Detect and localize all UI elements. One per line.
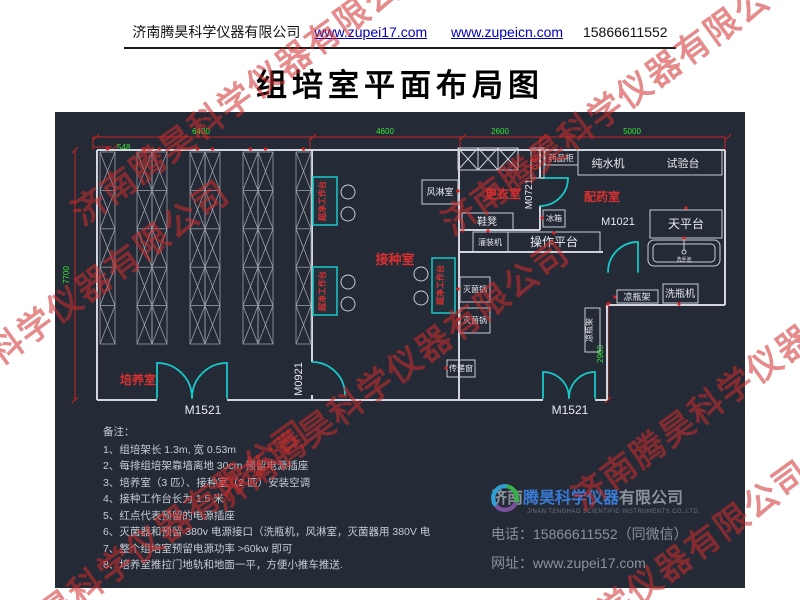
power-outlet-dot: [456, 317, 459, 320]
power-outlet-dot: [211, 147, 214, 150]
power-outlet-dot: [540, 216, 543, 219]
power-outlet-dot: [302, 147, 305, 150]
changing-room-label: 更衣室: [485, 186, 521, 201]
footer-company-suffix: 有限公司: [619, 490, 683, 507]
dim-6400: 6400: [192, 127, 210, 136]
footer-web-label: 网址：: [491, 555, 533, 571]
notes-heading: 备注：: [103, 424, 430, 441]
clean-bench-label: 超净工作台: [435, 265, 445, 306]
locker-cabinet: [458, 148, 518, 170]
header-phone: 15866611552: [583, 24, 668, 40]
door-m1521-left-label: M1521: [185, 403, 222, 417]
door-m0921-arc: [312, 362, 345, 395]
door-arc: [569, 372, 595, 398]
door-arc: [543, 372, 569, 398]
clean-bench-2: 超净工作台: [313, 267, 355, 315]
power-outlet-dot: [444, 366, 447, 369]
power-outlet-dot: [106, 147, 109, 150]
power-outlet-dot: [682, 236, 685, 239]
dispensing-room-label: 配药室: [584, 189, 620, 204]
shoe-bench-label: 鞋凳: [477, 215, 497, 228]
power-outlet-dot: [264, 147, 267, 150]
page: 济南腾昊科学仪器有限公司 www.zupei17.com www.zupeicn…: [0, 0, 800, 600]
note-item: 2、每排组培架靠墙离地 30cm 预留电源插座: [103, 458, 430, 475]
power-outlet-dot: [456, 189, 459, 192]
doors: [157, 178, 638, 398]
power-outlet-dot: [196, 147, 199, 150]
door-arc: [540, 178, 568, 206]
footer-web[interactable]: www.zupei17.com: [533, 555, 646, 571]
power-outlet-dot: [143, 147, 146, 150]
note-item: 6、灭菌器和预留 380v 电源接口（洗瓶机，风淋室，灭菌器用 380V 电: [103, 524, 430, 541]
sterilizer-label: 灭菌锅: [463, 284, 487, 294]
door-m0921-label: M0921: [293, 362, 305, 396]
note-item: 5、红点代表预留的电源插座: [103, 508, 430, 525]
note-item: 1、组培架长 1.3m, 宽 0.53m: [103, 442, 430, 459]
company-footer: 济南腾昊科学仪器有限公司 JINAN TENGHAO SCIENTIFIC IN…: [491, 484, 700, 573]
equipment: 风淋室 衣柜 药品柜 纯水机 试验台 冰箱 天平台 洗手池: [422, 148, 722, 377]
power-outlet-dot: [684, 206, 687, 209]
stool: [341, 207, 355, 221]
door-arc: [192, 363, 227, 398]
note-item: 8、培养室推拉门地轨和地面一平，方便小推车推送.: [103, 557, 430, 574]
pure-water-machine-label: 纯水机: [592, 156, 625, 170]
power-outlet-dot: [552, 231, 555, 234]
stool: [341, 297, 355, 311]
power-outlet-dot: [158, 147, 161, 150]
footer-company-brand: 腾昊科学仪器: [523, 490, 619, 507]
cad-drawing: 548 6400 4600 2600 5000 7700 2900: [55, 112, 745, 588]
footer-phone-label: 电话：: [491, 526, 533, 542]
dimension-lines: [72, 134, 731, 403]
dim-2600: 2600: [491, 127, 509, 136]
stool: [414, 291, 428, 305]
door-arc: [157, 363, 192, 398]
note-item: 4、接种工作台长为 1.5 米: [103, 491, 430, 508]
dim-7700: 7700: [62, 266, 71, 284]
double-door-left: [157, 363, 227, 398]
balance-table-label: 天平台: [668, 216, 704, 231]
power-outlet-dot: [249, 147, 252, 150]
test-bench-label: 试验台: [667, 156, 700, 170]
door-m0721-label: M0721: [524, 178, 535, 209]
pass-window-label: 传递窗: [449, 363, 473, 373]
power-outlet-dot: [606, 302, 609, 305]
door-m1521-right-label: M1521: [552, 403, 589, 417]
header-link-zupei17[interactable]: www.zupei17.com: [314, 24, 427, 40]
stool: [341, 185, 355, 199]
sterilizer-label: 灭菌锅: [463, 315, 487, 325]
filling-machine-label: 灌装机: [478, 237, 502, 247]
page-header: 济南腾昊科学仪器有限公司 www.zupei17.com www.zupeicn…: [0, 22, 800, 49]
stool: [341, 275, 355, 289]
stool: [414, 267, 428, 281]
bottle-cool-rack-label: 凉瓶架: [623, 291, 650, 302]
dim-4600: 4600: [376, 127, 394, 136]
culture-room-label: 培养室: [120, 372, 156, 387]
fridge-label: 冰箱: [546, 213, 562, 223]
bottle-washer-label: 洗瓶机: [665, 287, 695, 300]
clean-bench-label: 超净工作台: [317, 271, 327, 312]
hand-sink: 洗手池: [648, 240, 720, 266]
note-item: 3、培养室（3 匹）、接种室（2 匹）安装空调: [103, 475, 430, 492]
culture-racks: [100, 152, 311, 344]
power-outlet-dot: [613, 295, 616, 298]
door-m1021-label: M1021: [601, 216, 635, 228]
clean-bench-3: 超净工作台: [414, 258, 455, 313]
door-m0721: [540, 178, 568, 206]
page-title: 组培室平面布局图: [0, 60, 800, 105]
inoculation-room-label: 接种室: [375, 252, 414, 267]
power-outlet-dot: [486, 229, 489, 232]
header-company: 济南腾昊科学仪器有限公司: [132, 24, 300, 40]
clean-bench-1: 超净工作台: [313, 177, 355, 225]
dim-5000: 5000: [623, 127, 641, 136]
operation-platform-label: 操作平台: [530, 234, 578, 249]
power-outlet-dot: [456, 287, 459, 290]
door-arc: [608, 242, 638, 272]
medicine-cabinet-label: 药品柜: [548, 153, 574, 163]
door-dispensing: [608, 242, 638, 272]
clean-bench-label: 超净工作台: [317, 181, 327, 222]
air-shower-label: 风淋室: [426, 186, 453, 197]
double-door-right: [543, 372, 595, 398]
footer-phone: 15866611552（同微信）: [533, 526, 688, 542]
wardrobe-label: 衣柜: [529, 155, 539, 171]
note-item: 7、整个组培室预留电源功率 >60kw 即可: [103, 541, 430, 558]
bottle-cool-rack-vert-label: 凉瓶架: [584, 318, 594, 342]
footer-company-en: JINAN TENGHAO SCIENTIFIC INSTRUMENTS CO.…: [527, 509, 700, 515]
header-link-zupeicn[interactable]: www.zupeicn.com: [451, 24, 563, 40]
notes: 备注： 1、组培架长 1.3m, 宽 0.53m 2、每排组培架靠墙离地 30c…: [103, 424, 430, 574]
hand-sink-label: 洗手池: [676, 256, 691, 263]
company-logo: [491, 484, 519, 512]
power-outlet-dot: [677, 302, 680, 305]
